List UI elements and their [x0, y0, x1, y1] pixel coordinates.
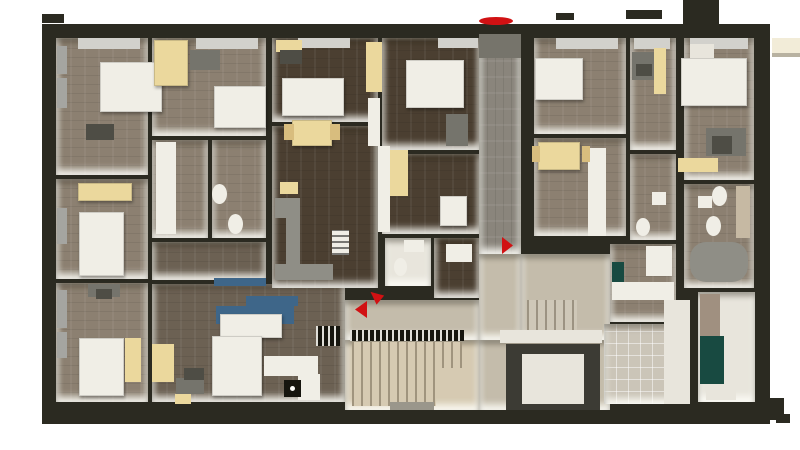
counter-3 — [275, 264, 333, 280]
top-wall-block — [683, 0, 719, 26]
wall-band-1 — [368, 98, 380, 146]
sink-2 — [652, 192, 666, 205]
bed-8 — [212, 336, 262, 396]
printer-1 — [184, 368, 204, 380]
fridge-1 — [646, 246, 672, 276]
sofa-cushions — [246, 296, 298, 306]
wardrobe-4 — [152, 344, 174, 382]
window-1 — [57, 46, 67, 74]
stair-flight-2 — [352, 368, 436, 406]
bench-1 — [678, 158, 718, 172]
chair-5 — [636, 64, 652, 76]
bed-6 — [406, 60, 464, 108]
window-5 — [57, 332, 67, 358]
desk-1 — [86, 124, 114, 140]
bed-1 — [100, 62, 162, 112]
closet-2 — [588, 148, 606, 236]
canopy-shadow — [772, 53, 800, 57]
room-living-strip — [152, 242, 266, 280]
counter-4 — [612, 282, 674, 300]
wardrobe-1 — [154, 40, 188, 86]
bed-7 — [440, 196, 467, 226]
desk-6 — [176, 378, 204, 394]
bed-2 — [214, 86, 266, 128]
rack-1 — [316, 326, 340, 346]
sofa-table — [220, 314, 282, 338]
sink-1 — [404, 240, 424, 252]
kitchen-counter-1 — [264, 356, 318, 376]
entrance-marker[interactable] — [479, 17, 513, 25]
cabinet-4 — [690, 44, 714, 58]
chair-1 — [96, 289, 112, 299]
toilet-1 — [212, 184, 227, 204]
stove-dot — [290, 386, 295, 391]
top-wall-stub-a — [42, 14, 64, 23]
wall-band-2 — [378, 146, 390, 232]
closet-1 — [156, 142, 176, 234]
floor-plan — [0, 0, 800, 450]
stair-railing — [350, 330, 464, 341]
chair-4 — [330, 124, 340, 140]
wall-face-white — [664, 300, 690, 404]
radiator-1 — [332, 230, 349, 255]
wardrobe-2 — [125, 338, 141, 382]
cabinet-1 — [366, 42, 382, 92]
kitchen-counter-2 — [298, 374, 320, 400]
desk-5 — [446, 114, 468, 146]
window-sill-2 — [196, 38, 258, 49]
corridor — [479, 34, 521, 254]
entry-mat — [483, 40, 517, 58]
hall-mid — [479, 254, 521, 340]
chair-6 — [532, 146, 540, 162]
chair-2 — [280, 50, 302, 64]
window-sill-3 — [298, 38, 350, 48]
chair-3 — [284, 124, 294, 140]
window-sill-4 — [438, 38, 478, 48]
top-wall-stub-c — [626, 10, 662, 19]
toilet-2 — [228, 214, 243, 234]
bed-5 — [282, 78, 344, 116]
wardrobe-5 — [654, 48, 666, 94]
tv-bench — [214, 278, 266, 286]
chair-7 — [582, 146, 590, 162]
cabinet-3 — [446, 244, 472, 262]
kitchenette-1 — [78, 183, 132, 201]
toilet-6 — [706, 216, 721, 236]
window-2 — [57, 78, 67, 108]
toilet-5 — [712, 186, 727, 206]
sink-3 — [698, 196, 712, 208]
teal-cabinet-1 — [612, 262, 624, 282]
teal-cabinet-2 — [700, 336, 724, 384]
bed-3 — [79, 212, 124, 276]
bed-9 — [535, 58, 583, 100]
chair-9 — [712, 136, 732, 154]
toilet-3 — [394, 258, 407, 276]
window-sill-1 — [78, 38, 140, 49]
mat-2 — [706, 390, 736, 400]
wardrobe-6 — [681, 58, 747, 106]
stair-flight-1 — [352, 342, 462, 368]
bed-4 — [79, 338, 124, 396]
toilet-4 — [636, 218, 650, 236]
window-sill-5 — [556, 38, 618, 49]
table-1 — [292, 120, 332, 146]
top-wall-stub-b — [556, 13, 574, 20]
table-2 — [538, 142, 580, 170]
desk-2 — [190, 50, 220, 70]
elevator-top — [500, 330, 602, 343]
elevator-cab — [522, 354, 584, 404]
tub-1 — [690, 242, 748, 282]
window-4 — [57, 290, 67, 328]
shower-1 — [736, 186, 750, 238]
cabinet-2 — [280, 182, 298, 194]
counter-1 — [275, 198, 300, 218]
bottom-wall-foot — [776, 414, 790, 423]
wood-shelf — [700, 294, 720, 336]
wardrobe-3 — [390, 150, 408, 196]
stair-mat — [390, 402, 434, 410]
window-3 — [57, 208, 67, 244]
canopy — [772, 38, 800, 53]
box-1 — [175, 394, 191, 404]
